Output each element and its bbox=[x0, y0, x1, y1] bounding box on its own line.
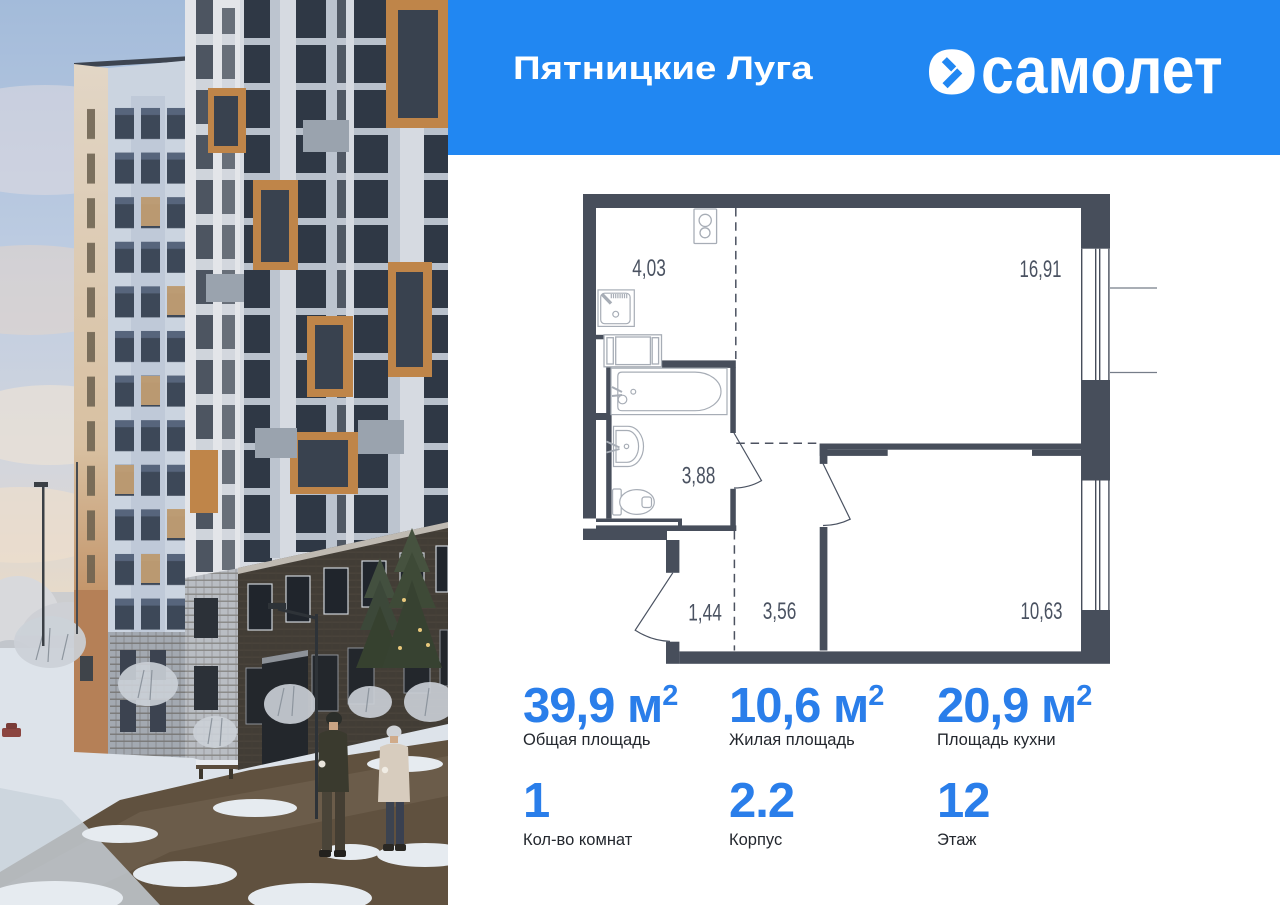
svg-text:самолет: самолет bbox=[981, 34, 1223, 108]
svg-text:4,03: 4,03 bbox=[632, 255, 666, 281]
svg-text:10,63: 10,63 bbox=[1020, 598, 1062, 625]
svg-text:3,88: 3,88 bbox=[682, 463, 716, 489]
svg-text:1,44: 1,44 bbox=[688, 600, 722, 626]
svg-text:Пятницкие Луга: Пятницкие Луга bbox=[513, 51, 813, 86]
svg-text:3,56: 3,56 bbox=[763, 598, 797, 624]
svg-text:16,91: 16,91 bbox=[1019, 256, 1061, 283]
